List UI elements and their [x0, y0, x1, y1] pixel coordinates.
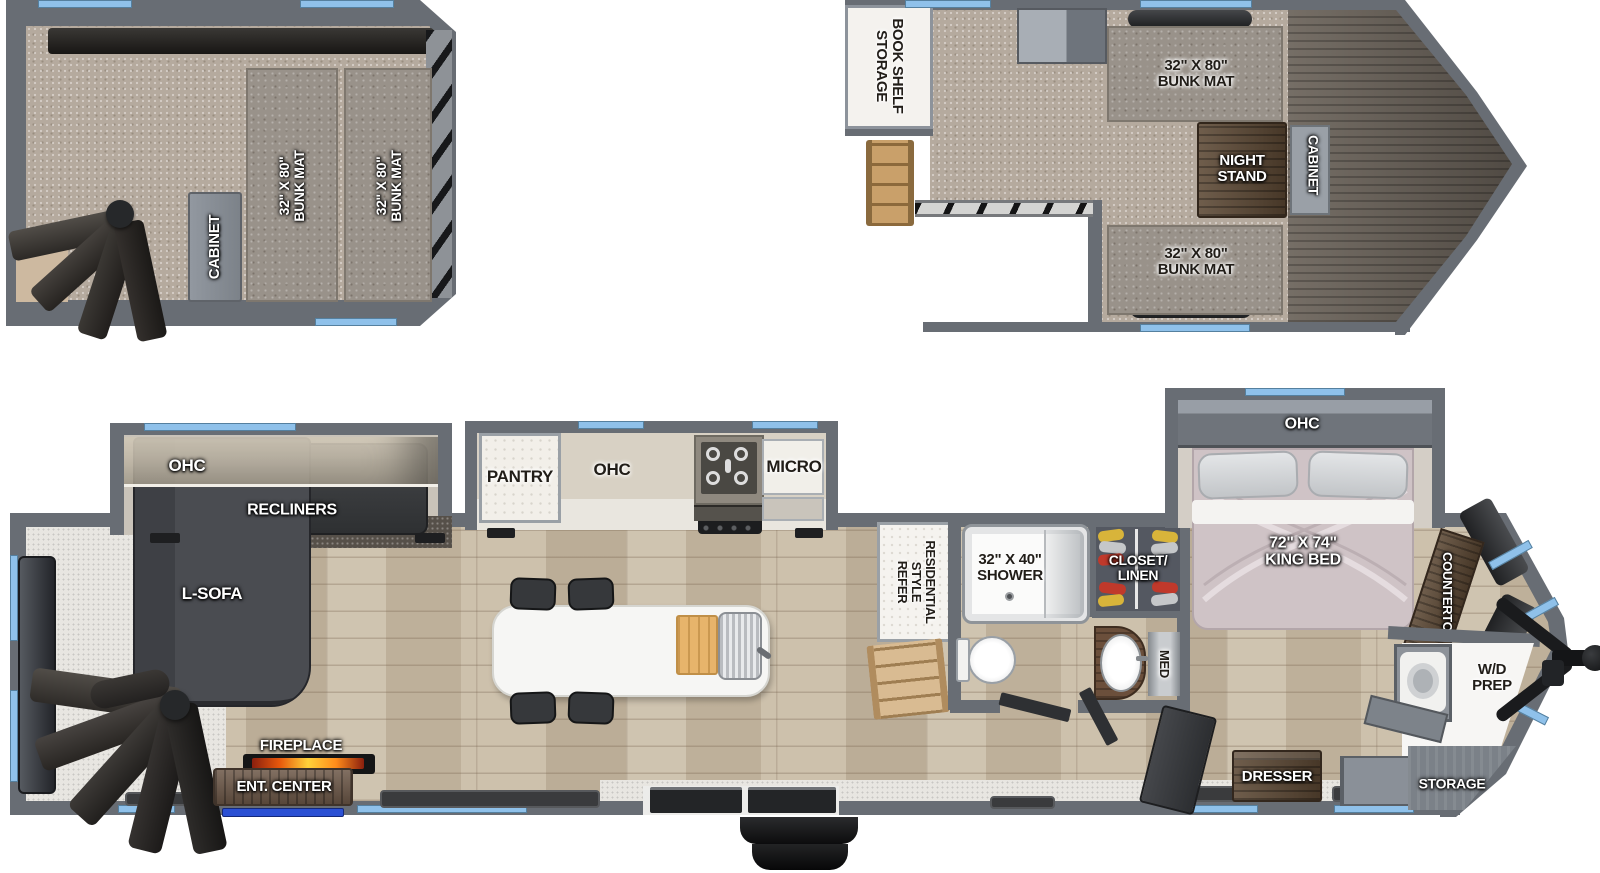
shower-label: 32" X 40"SHOWER	[977, 552, 1043, 584]
hitch-ball	[1582, 645, 1600, 671]
shower-drain	[1005, 592, 1014, 601]
fireplace-label: FIREPLACE	[260, 738, 342, 754]
slide-bracket	[487, 528, 515, 538]
loft-stair-rail	[866, 140, 914, 226]
window	[578, 421, 644, 429]
entry-door-panel	[650, 787, 742, 813]
recliners-label: RECLINERS	[247, 501, 337, 518]
pantry-label: PANTRY	[487, 468, 553, 486]
micro-drawer	[762, 497, 824, 521]
sink-faucet	[1136, 656, 1148, 661]
toilet-bowl	[968, 636, 1016, 684]
stove	[694, 435, 764, 505]
slide-bracket	[415, 533, 445, 543]
storage-cabinet	[1340, 756, 1416, 806]
window	[1188, 805, 1258, 813]
storage-label: STORAGE	[1419, 776, 1486, 791]
rear-bunk-2-label: 32" X 80"BUNK MAT	[374, 150, 404, 221]
micro-label: MICRO	[766, 458, 821, 476]
bed-sheet-fold	[1192, 500, 1414, 524]
rear-bunk-1-label: 32" X 80"BUNK MAT	[277, 150, 307, 221]
island-chair	[567, 691, 614, 725]
entry-step	[752, 844, 848, 870]
window	[1140, 324, 1250, 332]
med-cabinet-label: MED	[1157, 650, 1171, 678]
window	[300, 0, 394, 8]
cutting-board	[676, 615, 718, 675]
stove-vent	[698, 521, 762, 534]
night-stand-label: NIGHTSTAND	[1217, 153, 1266, 185]
ohc-living-label: OHC	[169, 457, 206, 475]
closet-linen-label: CLOSET/LINEN	[1109, 553, 1168, 583]
window	[315, 318, 397, 326]
front-bunk-bottom-label: 32" X 80"BUNK MAT	[1158, 246, 1234, 278]
pillow	[1197, 450, 1299, 499]
bath-wall	[1092, 610, 1188, 618]
window	[905, 0, 991, 8]
slide-bracket	[150, 533, 180, 543]
entry-door-panel	[748, 787, 836, 813]
countertop-label: COUNTERTOP	[1440, 552, 1454, 640]
loft-edge-ledge	[48, 28, 434, 54]
entry-step	[740, 817, 858, 844]
island-chair	[509, 577, 556, 611]
window-seat	[990, 796, 1055, 809]
loft-edge-hatch	[915, 200, 1093, 217]
rear-loft-cabinet-label: CABINET	[207, 215, 223, 280]
front-loft-cabinet-label: CABINET	[1305, 135, 1320, 195]
floorplan-canvas: CABINET 32" X 80"BUNK MAT 32" X 80"BUNK …	[0, 0, 1600, 873]
king-bed-label: 72" X 74"KING BED	[1265, 535, 1341, 570]
hitch-jack	[1542, 660, 1564, 686]
bath-sink	[1100, 634, 1142, 692]
ohc-kitchen-label: OHC	[594, 461, 631, 479]
shower-glass	[1044, 530, 1084, 618]
book-shelf-storage-label: BOOK SHELFSTORAGE	[873, 18, 905, 113]
loft-half-wall	[1088, 200, 1102, 328]
window	[144, 423, 296, 431]
oven	[694, 505, 764, 521]
refer-label: RESIDENTIALSTYLEREFER	[895, 540, 937, 623]
loft-notch-cabinet	[1017, 8, 1107, 64]
slide-bracket	[795, 528, 823, 538]
window-seat	[380, 790, 600, 808]
window	[1140, 0, 1252, 8]
ohc-bedroom-label: OHC	[1285, 415, 1320, 432]
wd-prep-label: W/DPREP	[1472, 662, 1512, 694]
sofa-label: L-SOFA	[182, 585, 243, 603]
ent-center-label: ENT. CENTER	[236, 779, 331, 795]
loft-stairs	[866, 638, 949, 720]
island-sink	[718, 612, 762, 680]
bath-wall	[950, 700, 1000, 713]
led-light-bar	[222, 808, 344, 817]
island-chair	[567, 577, 614, 611]
window	[38, 0, 132, 8]
pillow	[1307, 450, 1409, 499]
window	[1245, 388, 1345, 396]
window	[10, 555, 18, 641]
island-chair	[509, 691, 556, 725]
dresser-label: DRESSER	[1242, 769, 1312, 785]
window	[10, 690, 18, 782]
window	[752, 421, 818, 429]
front-bunk-top-label: 32" X 80"BUNK MAT	[1158, 58, 1234, 90]
window	[1334, 805, 1414, 813]
